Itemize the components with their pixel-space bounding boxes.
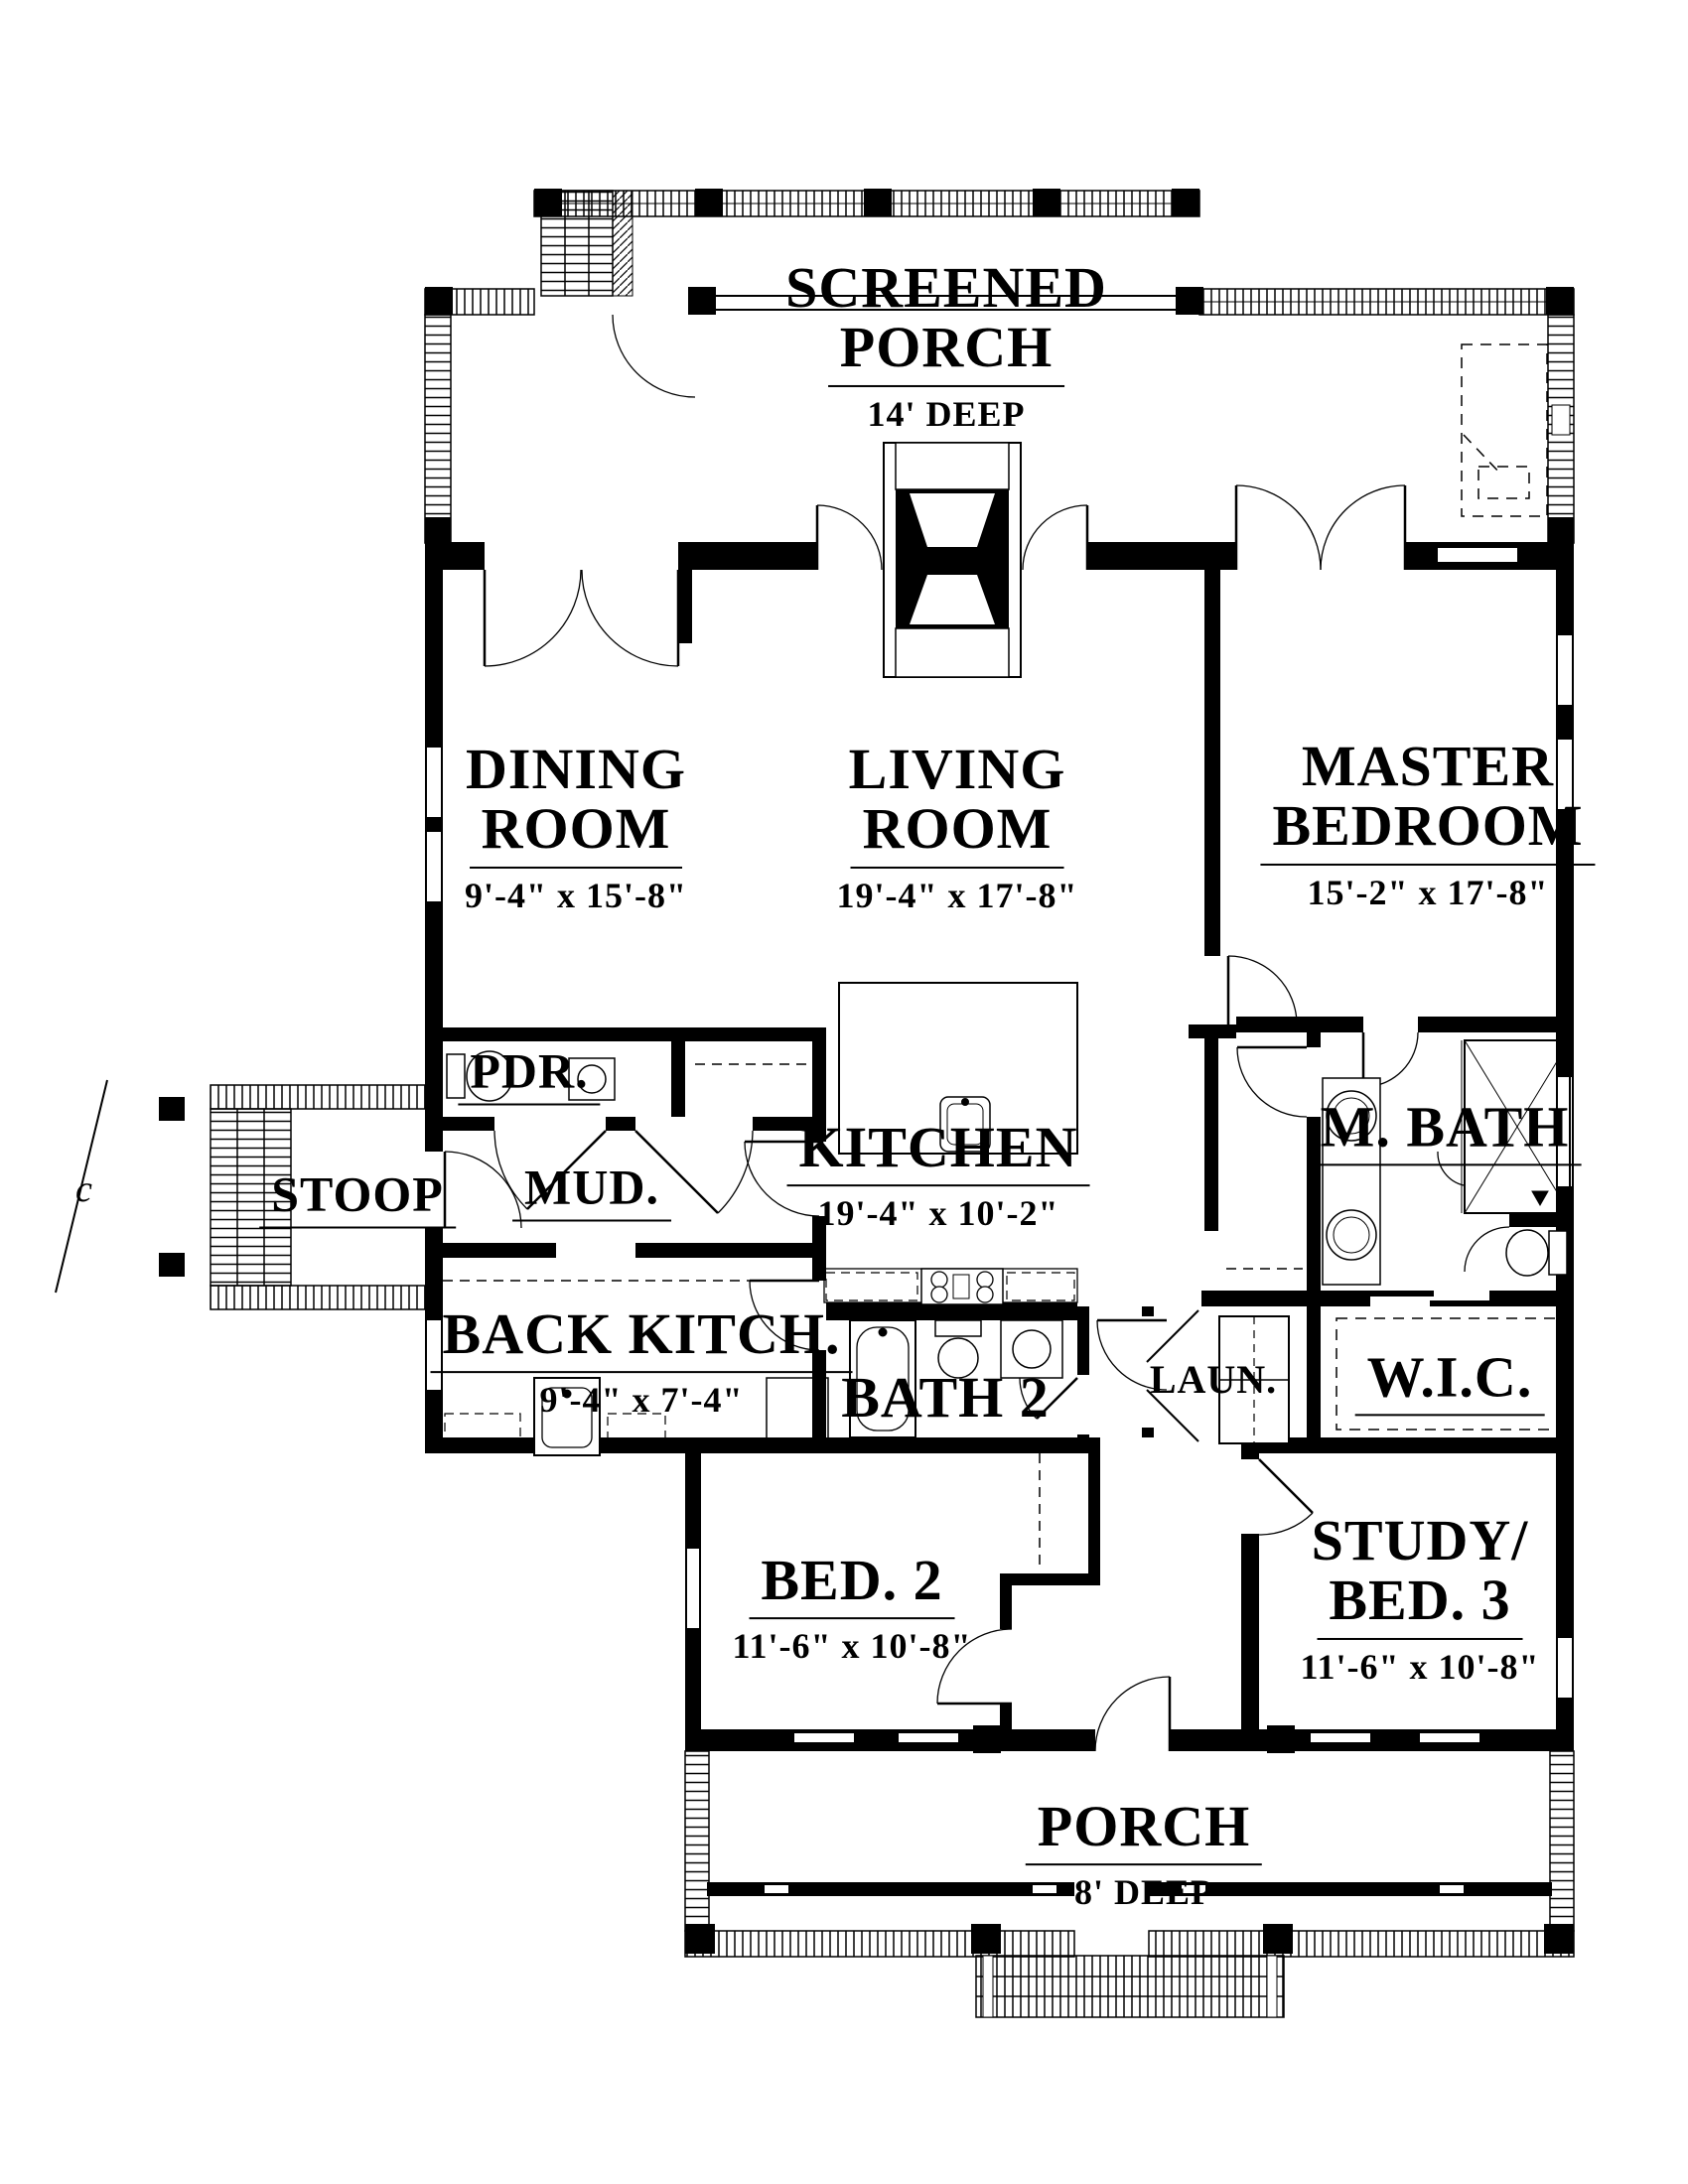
porch-dashed-feature bbox=[1462, 344, 1547, 516]
label-text: ROOM bbox=[851, 799, 1064, 868]
label-text: LIVING bbox=[837, 740, 1078, 799]
label-text: PORCH bbox=[1026, 1797, 1262, 1865]
room-label-pdr: PDR. bbox=[458, 1045, 600, 1106]
label-text: BED. 3 bbox=[1317, 1570, 1522, 1639]
room-label-screened-porch: SCREENED PORCH 14' DEEP bbox=[785, 258, 1107, 433]
mbath-toilet-icon bbox=[1506, 1230, 1567, 1276]
floor-plan-page: c SCREENED PORCH 14' DEEP DINING ROOM 9'… bbox=[0, 0, 1688, 2184]
label-text: STOOP bbox=[259, 1168, 456, 1229]
label-text: M. BATH bbox=[1309, 1097, 1582, 1165]
fireplace-icon bbox=[884, 443, 1021, 677]
label-text: STUDY/ bbox=[1301, 1511, 1540, 1570]
label-text: BEDROOM bbox=[1260, 796, 1595, 865]
room-label-living: LIVING ROOM 19'-4" x 17'-8" bbox=[837, 740, 1078, 914]
label-text: BED. 2 bbox=[749, 1551, 954, 1619]
front-steps bbox=[976, 1956, 1284, 2017]
room-label-wic: W.I.C. bbox=[1355, 1347, 1545, 1416]
label-text: ROOM bbox=[470, 799, 683, 868]
room-label-back-kitchen: BACK KITCH. 9'-4" x 7'-4" bbox=[431, 1304, 853, 1420]
label-text: MASTER bbox=[1260, 737, 1595, 796]
label-text: PDR. bbox=[458, 1045, 600, 1106]
room-label-bed2: BED. 2 11'-6" x 10'-8" bbox=[733, 1551, 972, 1666]
room-label-stoop: STOOP bbox=[259, 1168, 456, 1229]
label-text: SCREENED bbox=[785, 258, 1107, 318]
label-dims: 19'-4" x 17'-8" bbox=[837, 878, 1078, 914]
label-dims: 8' DEEP bbox=[1026, 1874, 1262, 1911]
room-label-master-bath: M. BATH bbox=[1309, 1097, 1582, 1165]
room-label-master: MASTER BEDROOM 15'-2" x 17'-8" bbox=[1260, 737, 1595, 911]
label-text: BATH 2 bbox=[841, 1368, 1050, 1428]
label-dims: 11'-6" x 10'-8" bbox=[1301, 1649, 1540, 1686]
label-dims: 9'-4" x 15'-8" bbox=[465, 878, 687, 914]
label-text: W.I.C. bbox=[1355, 1347, 1545, 1416]
room-label-laundry: LAUN. bbox=[1150, 1359, 1277, 1401]
label-text: DINING bbox=[465, 740, 687, 799]
centerline-symbol: c bbox=[75, 1168, 92, 1210]
room-label-bath2: BATH 2 bbox=[841, 1368, 1050, 1428]
room-label-dining: DINING ROOM 9'-4" x 15'-8" bbox=[465, 740, 687, 914]
wic-sliding-door bbox=[1362, 1291, 1501, 1306]
range-icon bbox=[921, 1269, 1003, 1304]
label-dims: 15'-2" x 17'-8" bbox=[1260, 875, 1595, 911]
room-label-mud: MUD. bbox=[512, 1161, 671, 1222]
label-dims: 14' DEEP bbox=[785, 396, 1107, 433]
label-text: BACK KITCH. bbox=[431, 1304, 853, 1373]
label-text: MUD. bbox=[512, 1161, 671, 1222]
label-dims: 9'-4" x 7'-4" bbox=[431, 1382, 853, 1419]
room-label-study: STUDY/ BED. 3 11'-6" x 10'-8" bbox=[1301, 1511, 1540, 1686]
room-label-porch: PORCH 8' DEEP bbox=[1026, 1797, 1262, 1912]
label-text: PORCH bbox=[828, 318, 1064, 386]
label-text: LAUN. bbox=[1150, 1359, 1277, 1401]
label-dims: 19'-4" x 10'-2" bbox=[787, 1195, 1090, 1232]
label-text: KITCHEN bbox=[787, 1118, 1090, 1186]
room-label-kitchen: KITCHEN 19'-4" x 10'-2" bbox=[787, 1118, 1090, 1233]
label-dims: 11'-6" x 10'-8" bbox=[733, 1628, 972, 1665]
